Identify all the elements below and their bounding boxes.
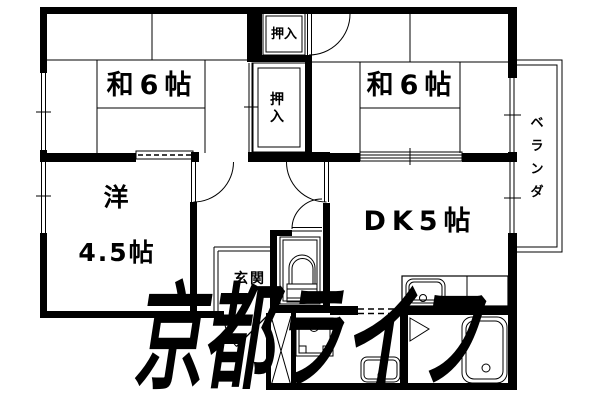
label-closet-upper: 押入 bbox=[271, 26, 297, 42]
watermark: 京都ライフ bbox=[133, 272, 487, 400]
floor-plan-drawing: 和6帖 和6帖 洋 4.5帖 DK5帖 玄関 押入 押 入 ベ ラ ン ダ 京都… bbox=[0, 0, 600, 400]
sliding-door-left bbox=[136, 151, 193, 159]
svg-text:ラ: ラ bbox=[530, 139, 543, 154]
sliding-door-dk bbox=[360, 148, 462, 165]
door-western-room bbox=[192, 162, 234, 202]
label-japanese-room-left: 和6帖 bbox=[107, 70, 198, 101]
label-western-room-line1: 洋 bbox=[103, 183, 128, 212]
svg-text:ン: ン bbox=[530, 162, 543, 177]
svg-text:ダ: ダ bbox=[530, 184, 543, 200]
door-toilet bbox=[292, 199, 322, 231]
window-right-japanese-room bbox=[504, 78, 521, 152]
door-dk bbox=[287, 162, 329, 202]
label-dining-kitchen: DK5帖 bbox=[363, 206, 476, 237]
label-veranda: ベ ラ ン ダ bbox=[530, 116, 543, 200]
svg-text:ベ: ベ bbox=[530, 116, 543, 131]
window-right-dk bbox=[504, 162, 521, 233]
label-japanese-room-right: 和6帖 bbox=[367, 70, 458, 101]
label-closet-lower-char1: 押 bbox=[270, 91, 284, 108]
window-left-japanese-room bbox=[36, 73, 51, 150]
label-western-room-line2: 4.5帖 bbox=[78, 238, 155, 267]
veranda bbox=[517, 60, 562, 252]
label-closet-lower-char2: 入 bbox=[270, 109, 284, 125]
sliding-door-closet bbox=[244, 63, 258, 152]
window-left-western-room bbox=[36, 160, 51, 233]
floor-plan: 和6帖 和6帖 洋 4.5帖 DK5帖 玄関 押入 押 入 ベ ラ ン ダ 京都… bbox=[0, 0, 600, 400]
door-closet-upper bbox=[308, 14, 351, 55]
